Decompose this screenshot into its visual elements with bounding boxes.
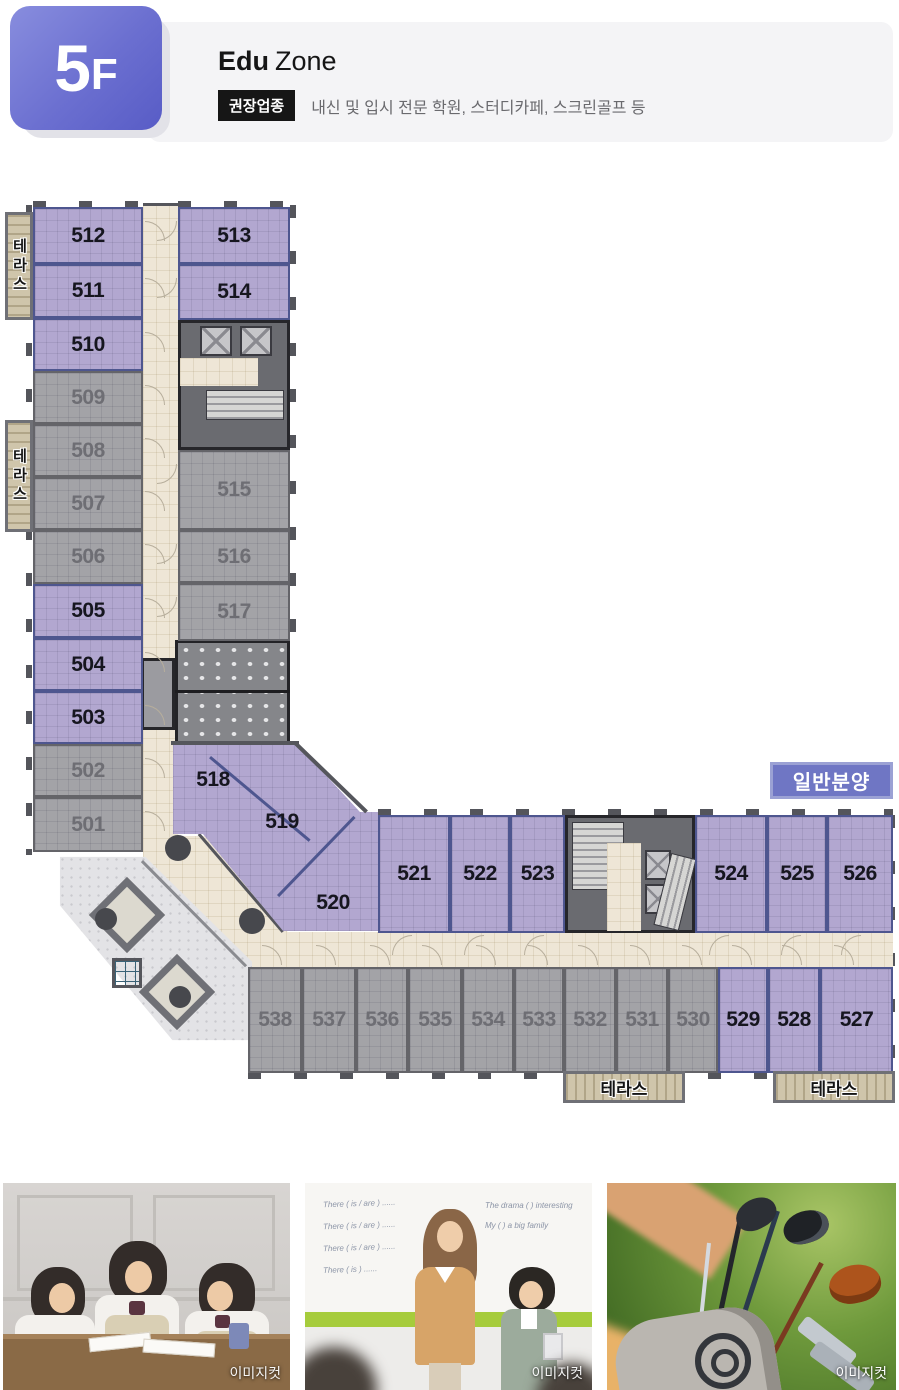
core-lobby-bottom <box>607 843 641 931</box>
unit-526: 526 <box>827 815 893 933</box>
unit-512: 512 <box>33 207 143 264</box>
unit-518: 518 <box>196 768 230 792</box>
unit-506: 506 <box>33 530 143 584</box>
wood-head-orange <box>826 1260 885 1308</box>
teacher-face <box>437 1221 463 1252</box>
unit-513: 513 <box>178 207 290 264</box>
unit-538: 538 <box>248 967 302 1073</box>
wall-corridor-top <box>143 203 178 206</box>
column-dot-3 <box>165 835 191 861</box>
image-watermark: 이미지컷 <box>229 1363 281 1383</box>
entrance-skylight <box>112 958 142 988</box>
unit-509: 509 <box>33 371 143 424</box>
restroom-divider-wall <box>175 690 290 693</box>
unit-516: 516 <box>178 530 290 583</box>
image-watermark: 이미지컷 <box>531 1363 583 1383</box>
whiteboard-line: The drama ( ) interesting <box>485 1201 573 1210</box>
unit-536: 536 <box>356 967 408 1073</box>
corridor-vertical <box>143 205 178 845</box>
golf-bag <box>609 1301 784 1390</box>
terrace-2: 테라스 <box>5 420 33 532</box>
unit-507: 507 <box>33 477 143 530</box>
driver-head-dark <box>779 1205 833 1250</box>
unit-502: 502 <box>33 744 143 797</box>
photo-teacher-student-whiteboard: There ( is / are ) ......There ( is / ar… <box>305 1183 592 1390</box>
unit-527: 527 <box>820 967 893 1073</box>
stairs-left-wing <box>206 390 284 420</box>
unit-531: 531 <box>616 967 668 1073</box>
elevator-1 <box>200 326 232 356</box>
student-face <box>519 1281 543 1308</box>
wall-518-top <box>171 741 299 745</box>
student-1-face <box>49 1283 75 1313</box>
cable-coil-inner <box>711 1349 739 1377</box>
unit-528: 528 <box>768 967 820 1073</box>
floorplan: 일반분양 51251151050950850750650550450350250… <box>0 0 899 1160</box>
whiteboard-line: There ( is / are ) ...... <box>323 1242 396 1254</box>
whiteboard-line: My ( ) a big family <box>485 1221 548 1230</box>
column-dot-1 <box>95 908 117 930</box>
unit-503: 503 <box>33 691 143 744</box>
elevator-lobby <box>180 358 258 386</box>
unit-510: 510 <box>33 318 143 371</box>
unit-519: 519 <box>265 810 299 834</box>
student-2-face <box>125 1261 152 1293</box>
terrace-label: 테라스 <box>9 448 30 505</box>
unit-517: 517 <box>178 583 290 641</box>
whiteboard-line: There ( is ) ...... <box>323 1264 378 1275</box>
unit-522: 522 <box>450 815 510 933</box>
page: 5 F EduZone 권장업종 내신 및 입시 전문 학원, 스터디카페, 스… <box>0 0 899 1390</box>
elevator-2 <box>240 326 272 356</box>
student-2-bow <box>129 1301 145 1315</box>
unit-537: 537 <box>302 967 356 1073</box>
unit-529: 529 <box>718 967 768 1073</box>
unit-504: 504 <box>33 638 143 691</box>
unit-524: 524 <box>695 815 767 933</box>
unit-511: 511 <box>33 264 143 318</box>
unit-520: 520 <box>316 891 350 915</box>
terrace-label: 테라스 <box>811 1075 858 1100</box>
column-dot-2 <box>169 986 191 1008</box>
columns-right-edge-left-wing <box>290 205 296 645</box>
unit-533: 533 <box>514 967 564 1073</box>
unit-523: 523 <box>510 815 565 933</box>
terrace-label: 테라스 <box>9 238 30 295</box>
whiteboard-line: There ( is / are ) ...... <box>323 1198 396 1210</box>
unit-508: 508 <box>33 424 143 477</box>
student-3-face <box>207 1281 233 1311</box>
unit-532: 532 <box>564 967 616 1073</box>
unit-535: 535 <box>408 967 462 1073</box>
photo-golf-clubs: 이미지컷 <box>607 1183 896 1390</box>
unit-514: 514 <box>178 264 290 320</box>
terrace-3: 테라스 <box>563 1071 685 1103</box>
unit-505: 505 <box>33 584 143 638</box>
photo-students-studying: 이미지컷 <box>3 1183 290 1390</box>
terrace-label: 테라스 <box>601 1075 648 1100</box>
unit-525: 525 <box>767 815 827 933</box>
terrace-1: 테라스 <box>5 212 33 320</box>
unit-515: 515 <box>178 450 290 530</box>
unit-521: 521 <box>378 815 450 933</box>
unit-501: 501 <box>33 797 143 852</box>
column-dot-4 <box>239 908 265 934</box>
image-watermark: 이미지컷 <box>835 1363 887 1383</box>
unit-530: 530 <box>668 967 718 1073</box>
student-3-bow <box>215 1315 230 1328</box>
whiteboard-line: There ( is / are ) ...... <box>323 1220 396 1232</box>
tablet <box>543 1333 563 1360</box>
terrace-4: 테라스 <box>773 1071 895 1103</box>
legend-general-sale: 일반분양 <box>770 762 893 799</box>
student-shirt <box>521 1309 537 1329</box>
pencil-cup <box>229 1323 249 1349</box>
teacher-pants <box>429 1363 461 1390</box>
unit-534: 534 <box>462 967 514 1073</box>
